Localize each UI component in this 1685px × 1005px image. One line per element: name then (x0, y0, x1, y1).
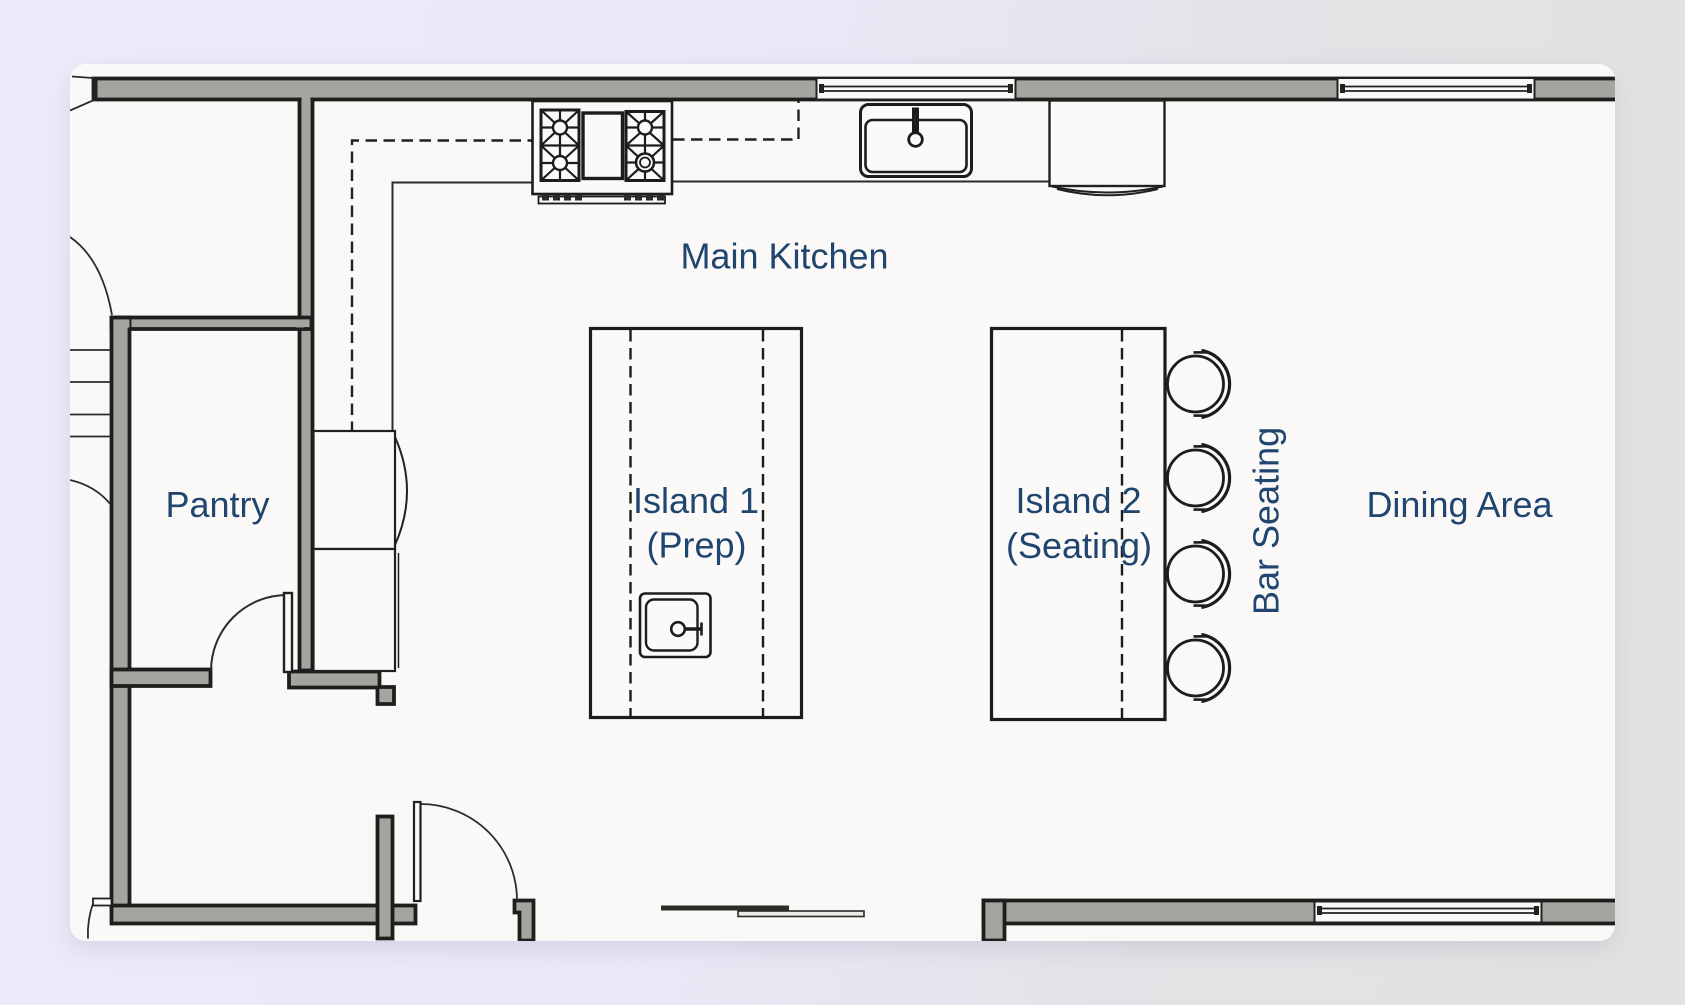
svg-text:(Prep): (Prep) (646, 525, 746, 566)
svg-text:Pantry: Pantry (165, 484, 269, 525)
svg-text:(Seating): (Seating) (1006, 525, 1152, 566)
svg-text:Dining Area: Dining Area (1366, 484, 1553, 525)
svg-text:Main Kitchen: Main Kitchen (680, 236, 888, 277)
svg-text:Island 1: Island 1 (633, 480, 759, 521)
svg-text:Island 2: Island 2 (1015, 480, 1141, 521)
svg-text:Bar Seating: Bar Seating (1246, 427, 1287, 615)
